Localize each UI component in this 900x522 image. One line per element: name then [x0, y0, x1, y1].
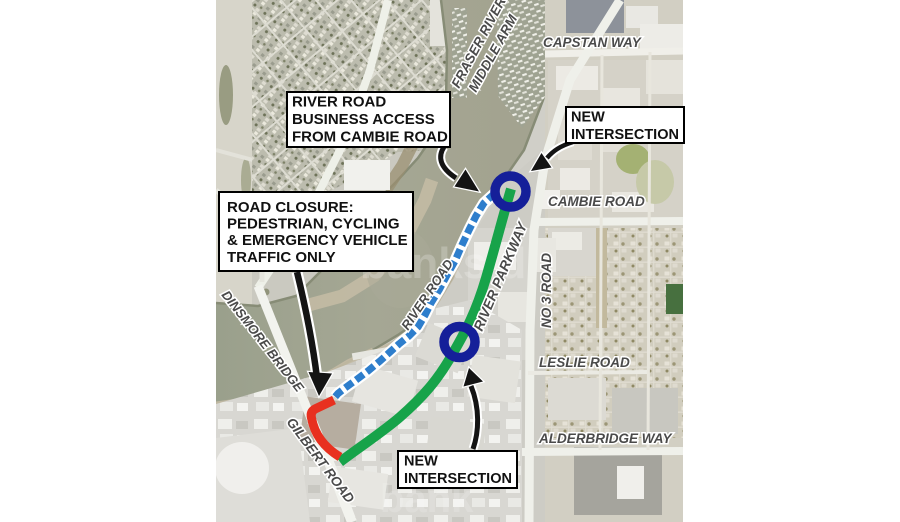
svg-text:NO 3 ROAD: NO 3 ROAD — [539, 253, 554, 328]
svg-text:ALDERBRIDGE WAY: ALDERBRIDGE WAY — [538, 431, 673, 446]
svg-text:& EMERGENCY VEHICLE: & EMERGENCY VEHICLE — [227, 232, 408, 249]
svg-text:INTERSECTION: INTERSECTION — [404, 471, 512, 487]
svg-text:CAMBIE ROAD: CAMBIE ROAD — [548, 194, 645, 209]
svg-text:NEW: NEW — [571, 110, 605, 126]
svg-text:PEDESTRIAN, CYCLING: PEDESTRIAN, CYCLING — [227, 216, 400, 233]
svg-text:BUSINESS ACCESS: BUSINESS ACCESS — [292, 111, 435, 128]
svg-text:INTERSECTION: INTERSECTION — [571, 127, 679, 143]
svg-text:ROAD CLOSURE:: ROAD CLOSURE: — [227, 199, 354, 216]
svg-text:LESLIE ROAD: LESLIE ROAD — [539, 355, 630, 370]
svg-text:RIVER ROAD: RIVER ROAD — [292, 94, 386, 111]
svg-text:FROM CAMBIE ROAD: FROM CAMBIE ROAD — [292, 129, 448, 146]
svg-text:TRAFFIC ONLY: TRAFFIC ONLY — [227, 249, 336, 266]
svg-text:NEW: NEW — [404, 454, 438, 470]
svg-text:CAPSTAN WAY: CAPSTAN WAY — [543, 35, 643, 50]
